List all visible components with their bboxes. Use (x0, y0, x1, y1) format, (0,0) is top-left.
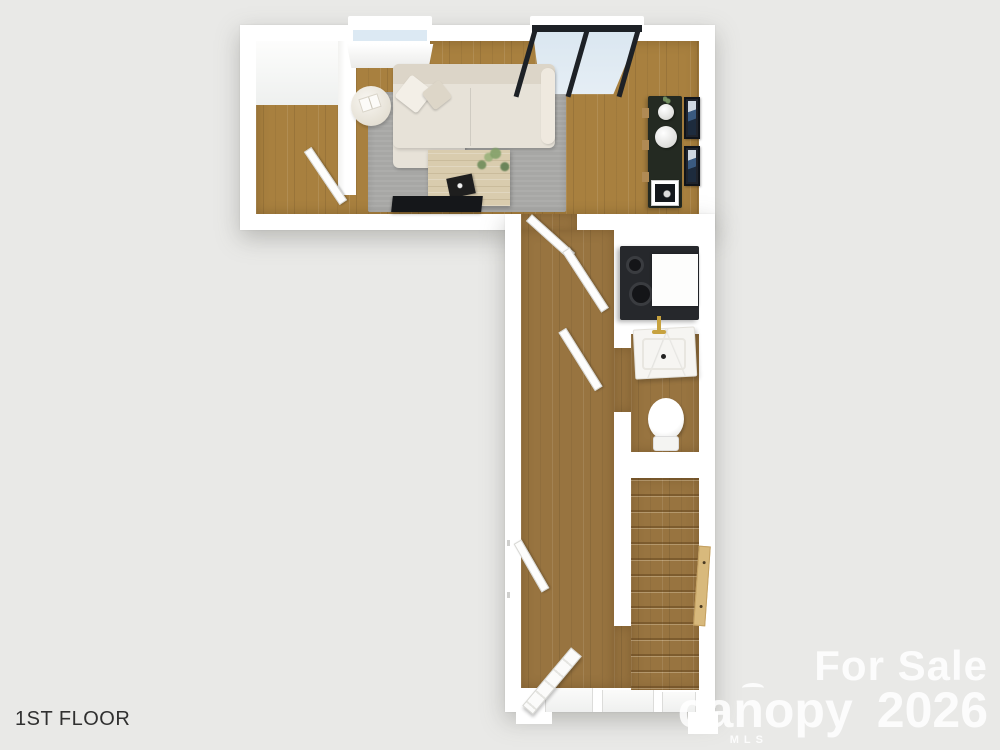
doorway-threshold (602, 690, 654, 712)
washer-lid (652, 254, 698, 306)
mls-logo-text: MLS (730, 734, 853, 746)
stair-opening-floor (614, 626, 631, 688)
framed-wall-art (684, 146, 700, 186)
watermark: For Sale canopy MLS 2026 (678, 645, 988, 746)
console-shelf-support (642, 140, 649, 150)
decor-vase (655, 126, 677, 148)
leaning-art-frame (651, 180, 679, 206)
watermark-year: 2026 (877, 689, 988, 732)
canopy-tilde-mark (742, 683, 764, 693)
tv (391, 196, 483, 212)
plant-sprig (663, 96, 673, 106)
toilet-tank (653, 436, 679, 451)
floor-label: 1ST FLOOR (15, 708, 130, 731)
window (350, 27, 430, 44)
bathroom-doorway-floor (614, 348, 631, 412)
slider-track (532, 25, 642, 32)
console-shelf-support (642, 172, 649, 182)
dryer-drum (629, 282, 653, 306)
door-jamb (507, 540, 510, 546)
decor-vase (658, 104, 674, 120)
houseplant (468, 142, 514, 180)
watermark-brand-row: canopy MLS 2026 (678, 689, 988, 746)
washer-drum (626, 256, 644, 274)
toilet (648, 398, 684, 440)
watermark-sale-text: For Sale (678, 645, 988, 687)
door-jamb (507, 592, 510, 598)
sink-drain (661, 354, 666, 359)
floorplan-canvas: 1ST FLOOR For Sale canopy MLS 2026 (0, 0, 1000, 750)
sofa-cushion-seam (470, 88, 471, 146)
entry-nook-wall-face (256, 41, 340, 105)
front-stoop (516, 712, 552, 724)
framed-wall-art (684, 97, 700, 139)
console-shelf-support (642, 108, 649, 118)
window-exterior-bump (348, 16, 432, 27)
canopy-logo-text: canopy (678, 682, 853, 738)
gold-faucet (652, 330, 666, 334)
sofa-armrest (541, 68, 555, 144)
canopy-mls-logo: canopy MLS (678, 689, 853, 746)
